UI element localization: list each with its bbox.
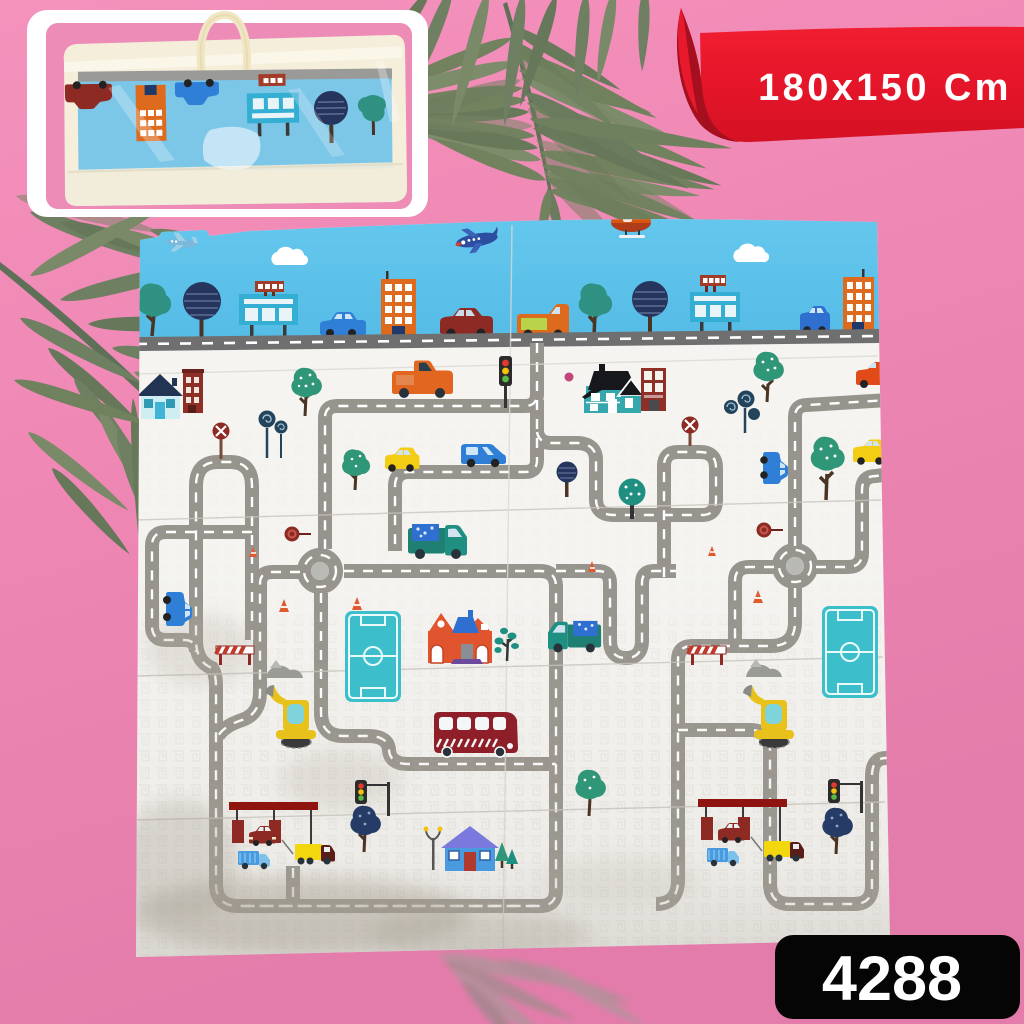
svg-text:180x150 Cm: 180x150 Cm: [758, 67, 1012, 109]
svg-text:4288: 4288: [822, 944, 962, 1014]
